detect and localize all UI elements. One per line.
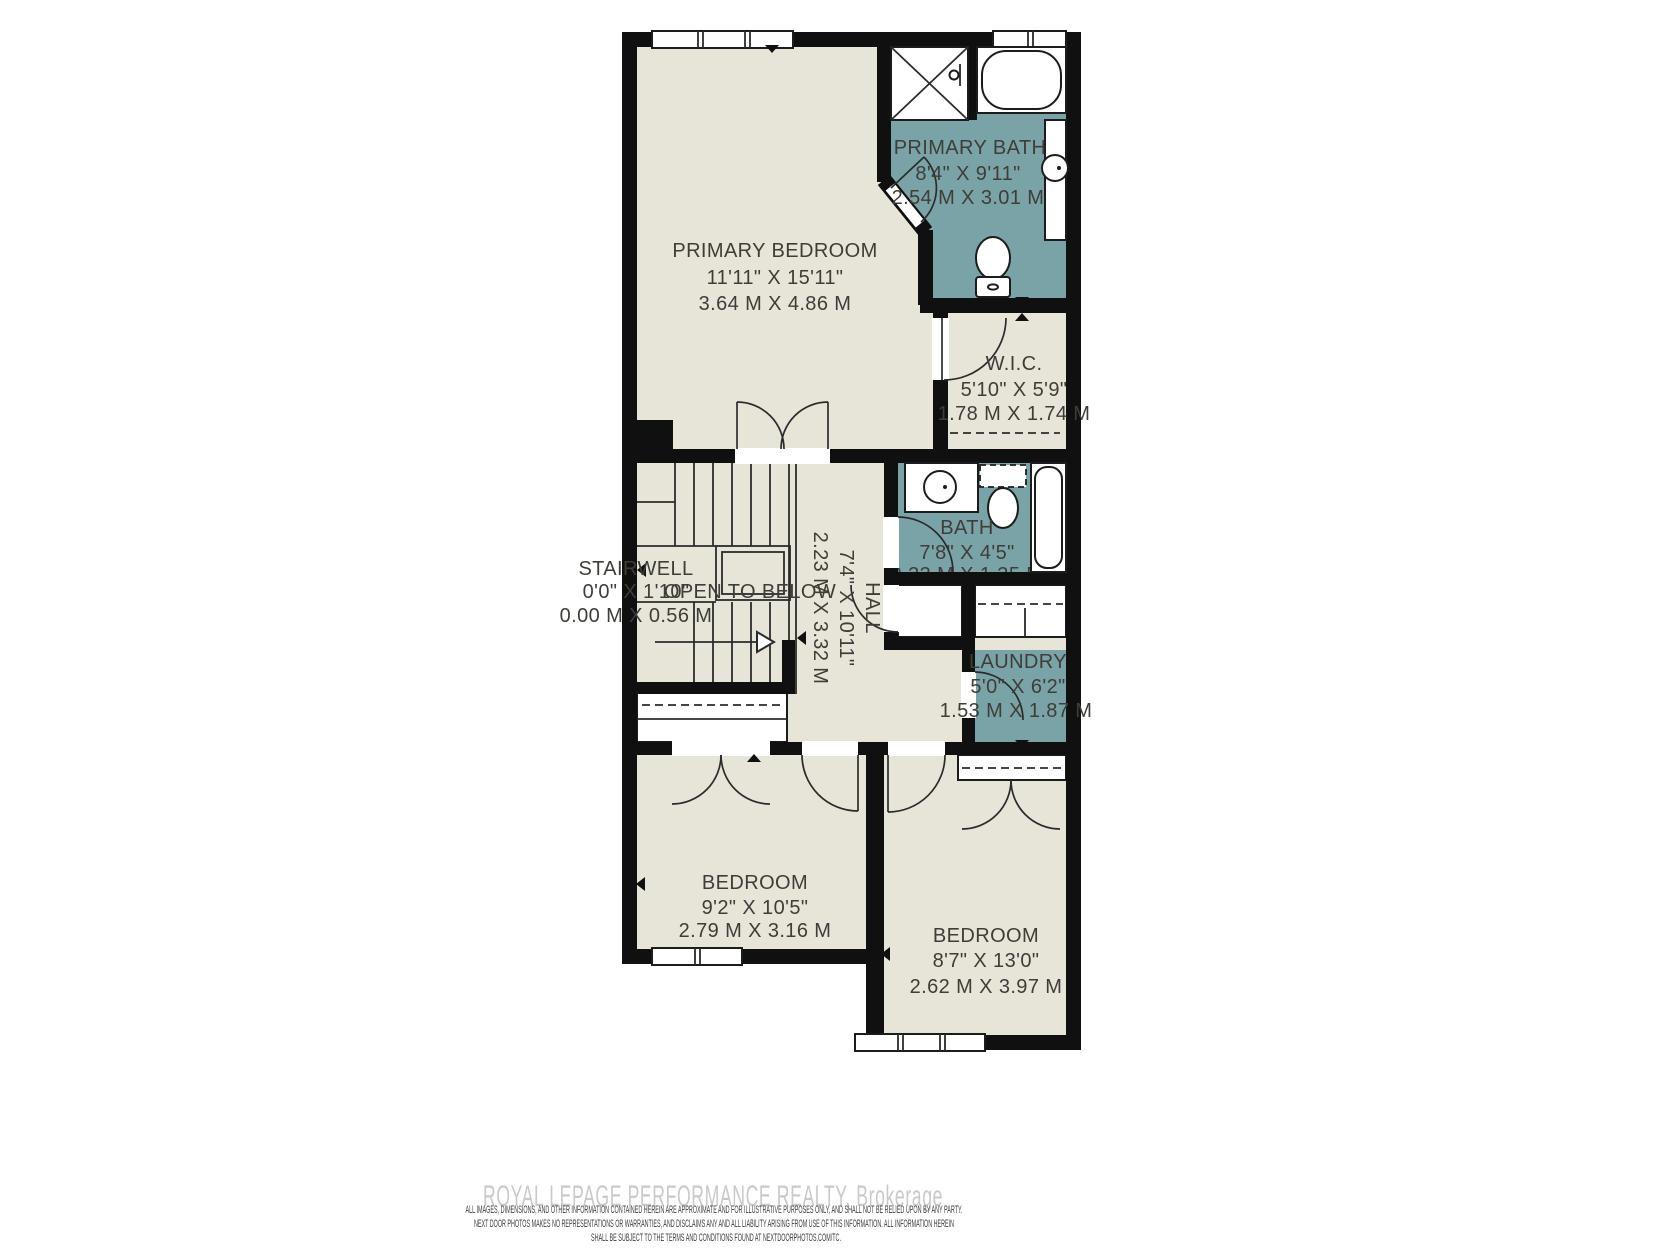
room-dim-imperial-primary-bath: 8'4" X 9'11": [915, 163, 1020, 185]
room-label-hall: HALL: [861, 582, 883, 634]
wall-left: [622, 32, 637, 964]
wall-bath-bottom: [884, 572, 1066, 585]
room-dim-imperial-hall: 7'4" X 10'11": [835, 550, 857, 667]
room-label-bedroom-right: BEDROOM: [933, 925, 1039, 947]
room-dim-metric-primary-bedroom: 3.64 M X 4.86 M: [699, 293, 852, 315]
floor-plan-page: 2.33 M X 1.35 M: [0, 0, 1680, 1260]
room-label-primary-bedroom: PRIMARY BEDROOM: [672, 240, 877, 262]
primary-bath-toilet-icon: [976, 237, 1010, 297]
wall-hall-closet-bottom: [884, 637, 975, 650]
wic-door-opening: [932, 318, 949, 380]
bath-vanity-sink-icon: [905, 463, 978, 512]
primary-bedroom-door-opening: [735, 448, 830, 464]
room-dim-metric-wic: 1.78 M X 1.74 M: [938, 403, 1091, 425]
bedroom-right-door-opening: [888, 741, 945, 756]
room-label-bath: BATH: [940, 517, 993, 539]
disclaimer-line-2: NEXT DOOR PHOTOS MAKES NO REPRESENTATION…: [474, 1218, 954, 1230]
wall-wic-top: [920, 298, 1066, 313]
window-primary-bath: [993, 31, 1066, 48]
room-label-laundry: LAUNDRY: [969, 651, 1067, 673]
disclaimer-line-1: ALL IMAGES, DIMENSIONS, AND OTHER INFORM…: [466, 1204, 963, 1216]
bedroom-left-closet: [637, 692, 787, 742]
wall-stair-stub: [782, 640, 795, 694]
disclaimer-line-3: SHALL BE SUBJECT TO THE TERMS AND CONDIT…: [591, 1232, 841, 1244]
bedroom-right-closet: [958, 755, 1066, 780]
room-dim-imperial-wic: 5'10" X 5'9": [961, 379, 1068, 401]
bath-door-opening: [883, 517, 899, 568]
wall-pillar: [622, 420, 673, 463]
wall-right: [1066, 32, 1081, 1050]
room-label-stairwell: STAIRWELL: [578, 558, 693, 580]
wall-bedroom-divider: [866, 742, 884, 1050]
room-dim-metric-hall: 2.23 M X 3.32 M: [809, 532, 831, 685]
bath-tub-icon: [1031, 463, 1066, 572]
linen-closet: [975, 585, 1066, 637]
wall-shower-left: [877, 32, 891, 182]
shower-icon: [891, 47, 968, 120]
window-bedroom-right: [855, 1034, 985, 1051]
footer: ROYAL LEPAGE PERFORMANCE REALTY, Brokera…: [466, 1180, 963, 1244]
wall-shower-tub-divider: [968, 32, 977, 120]
room-dim-metric-bedroom-left: 2.79 M X 3.16 M: [679, 920, 832, 942]
room-dim-imperial-bedroom-right: 8'7" X 13'0": [933, 950, 1040, 972]
room-dim-metric-stairwell: 0.00 M X 0.56 M: [560, 605, 713, 627]
room-dim-metric-laundry: 1.53 M X 1.87 M: [940, 700, 1093, 722]
window-bedroom-left: [652, 948, 742, 965]
hall-closet-door-opening: [883, 585, 899, 632]
room-dim-metric-bedroom-right: 2.62 M X 3.97 M: [910, 976, 1063, 998]
room-label-primary-bath: PRIMARY BATH: [894, 137, 1047, 159]
room-label-wic: W.I.C.: [986, 353, 1043, 375]
bedroom-left-door-opening: [802, 741, 858, 756]
room-dim-imperial-laundry: 5'0" X 6'2": [970, 676, 1065, 698]
room-dim-imperial-bedroom-left: 9'2" X 10'5": [702, 897, 809, 919]
floor-plan-drawing: 2.33 M X 1.35 M: [0, 0, 1680, 1260]
bathtub-icon: [977, 47, 1066, 113]
bedroom-left-closet-opening: [672, 741, 770, 756]
room-dim-imperial-primary-bedroom: 11'11" X 15'11": [707, 267, 844, 289]
room-dim-metric-primary-bath: 2.54 M X 3.01 M: [892, 187, 1045, 209]
wall-bath-wic-connector: [918, 230, 933, 305]
wall-stair-bottom: [622, 682, 795, 694]
hall-closet: [898, 585, 962, 637]
room-dim-imperial-bath: 7'8" X 4'5": [919, 542, 1014, 564]
room-label-bedroom-left: BEDROOM: [702, 872, 808, 894]
